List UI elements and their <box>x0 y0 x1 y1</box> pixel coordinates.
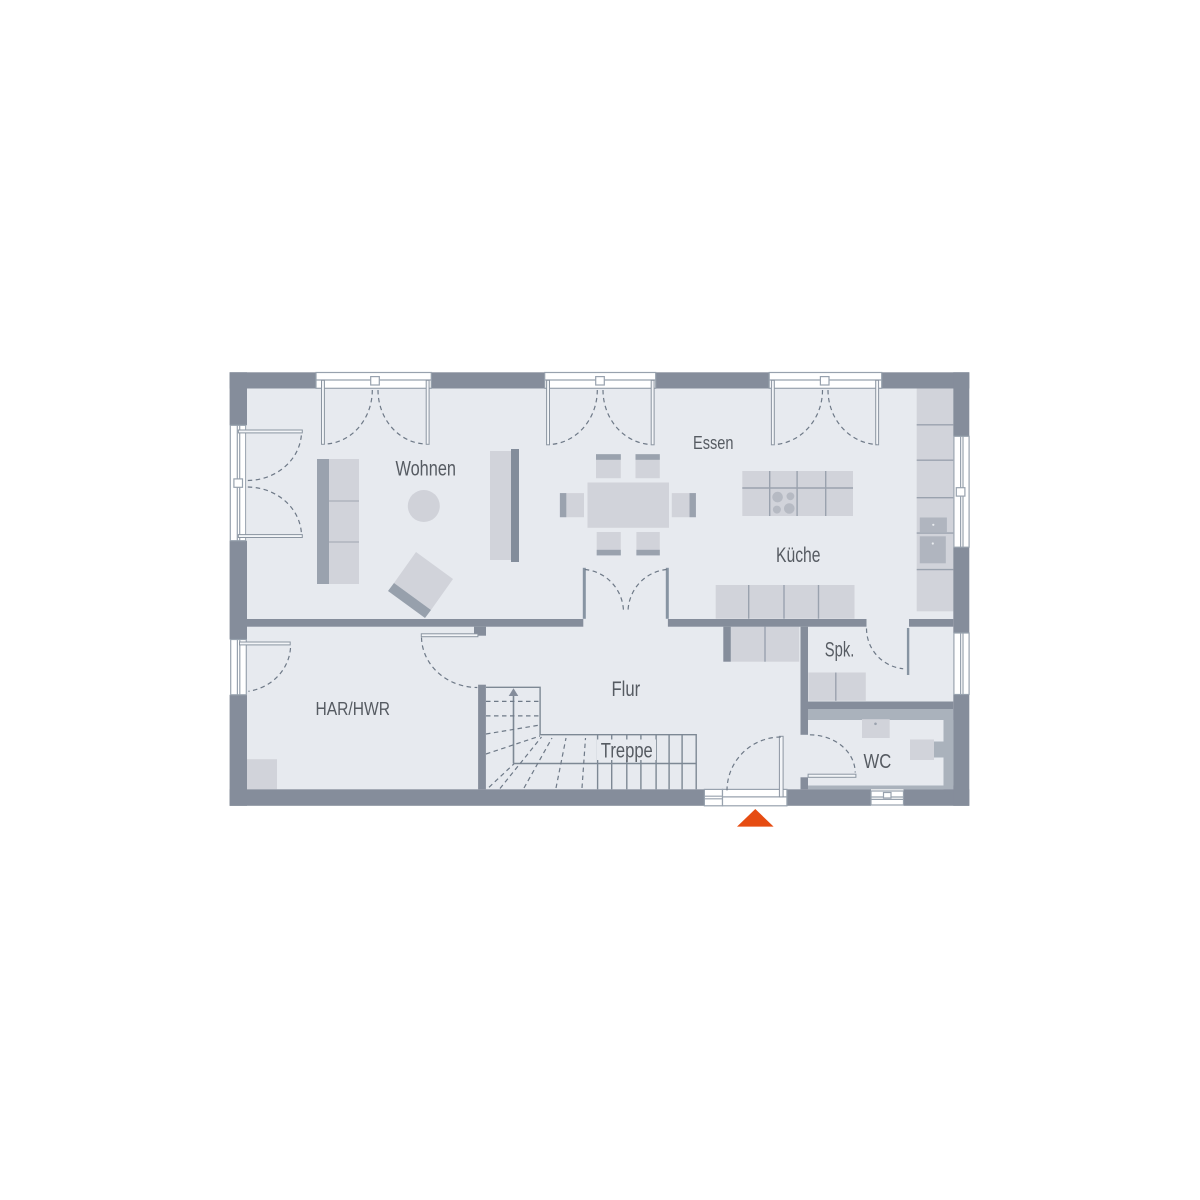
svg-text:Spk.: Spk. <box>825 639 855 662</box>
svg-text:HAR/HWR: HAR/HWR <box>316 698 391 719</box>
svg-text:Treppe: Treppe <box>601 740 653 763</box>
svg-text:Wohnen: Wohnen <box>396 458 457 481</box>
svg-text:Essen: Essen <box>693 432 734 453</box>
svg-text:Flur: Flur <box>612 678 641 701</box>
svg-text:Küche: Küche <box>776 544 821 567</box>
svg-text:WC: WC <box>864 751 892 773</box>
